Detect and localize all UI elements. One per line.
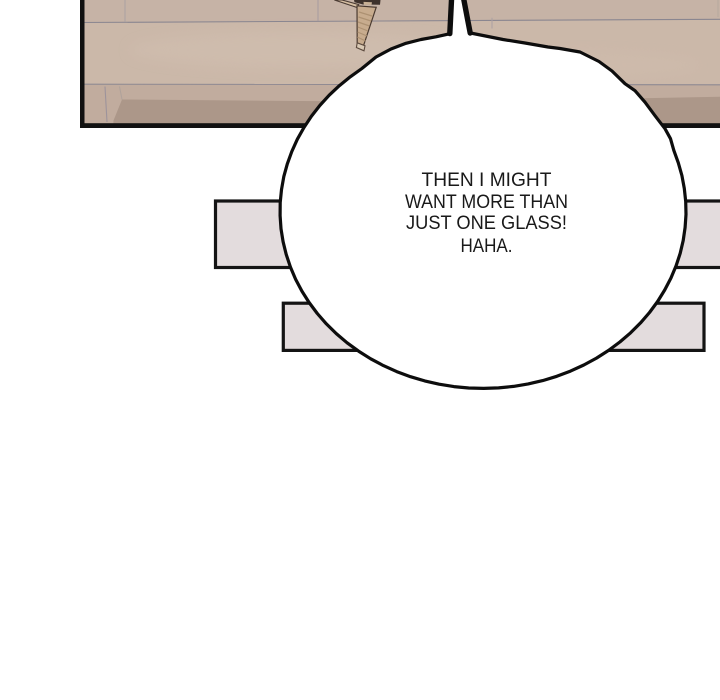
- svg-text:HAHA.: HAHA.: [461, 235, 513, 257]
- svg-text:JUST ONE GLASS!: JUST ONE GLASS!: [406, 212, 567, 234]
- svg-text:WANT MORE THAN: WANT MORE THAN: [405, 191, 568, 213]
- svg-text:THEN I MIGHT: THEN I MIGHT: [422, 169, 552, 191]
